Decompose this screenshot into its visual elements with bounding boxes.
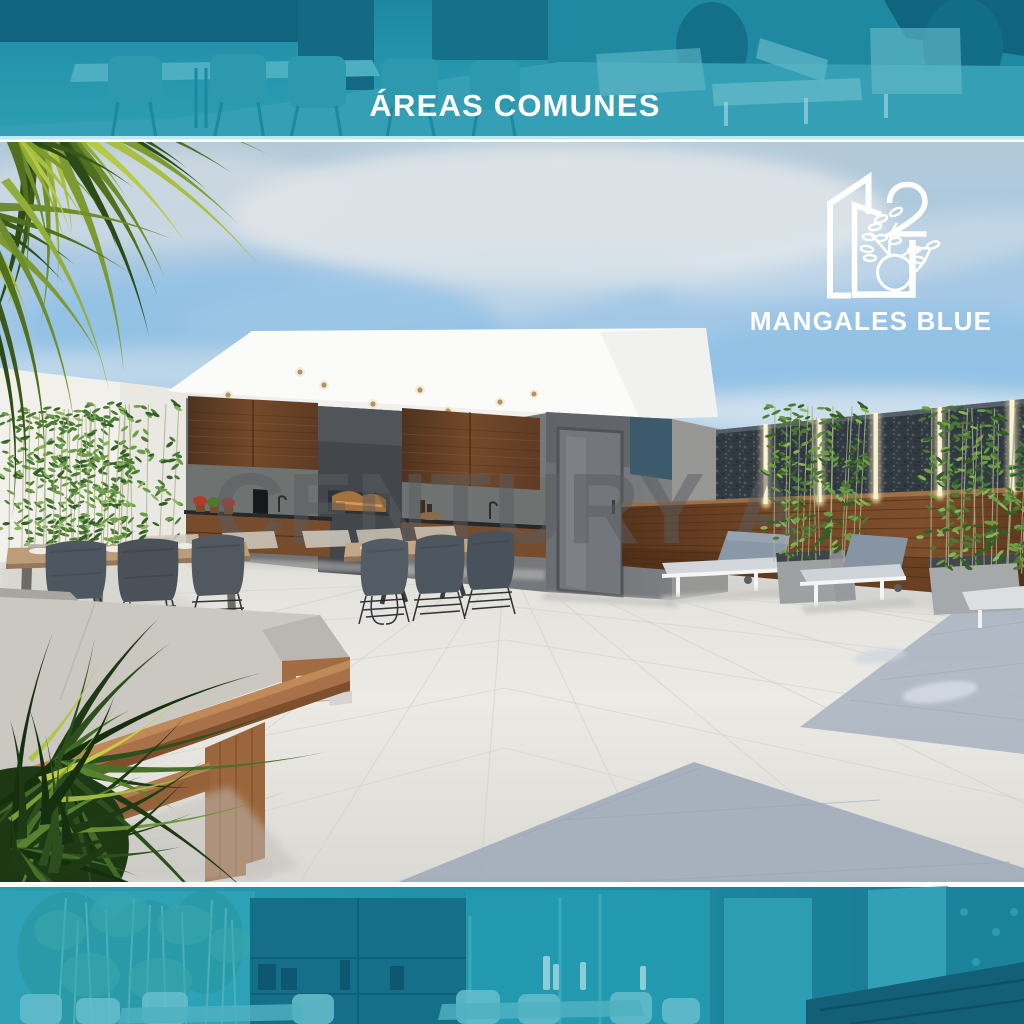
svg-text:ÁREAS COMUNES: ÁREAS COMUNES	[369, 88, 660, 123]
svg-text:MANGALES BLUE: MANGALES BLUE	[750, 306, 992, 336]
